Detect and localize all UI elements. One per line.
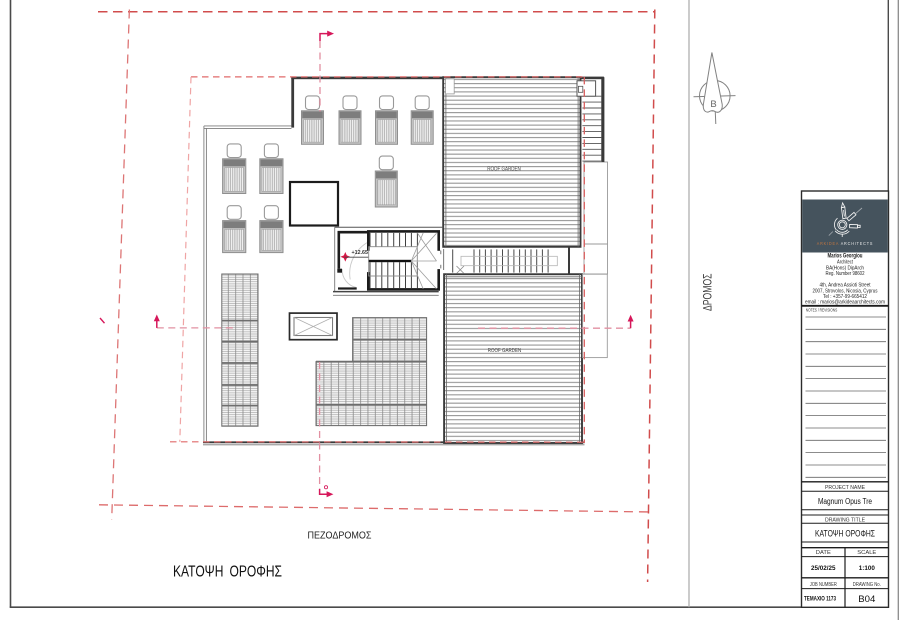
svg-text:B: B: [710, 99, 716, 110]
svg-text:ΔΡΟΜΟΣ: ΔΡΟΜΟΣ: [700, 274, 714, 312]
svg-text:DRAWING No.: DRAWING No.: [853, 582, 881, 588]
svg-text:Reg. Number 98602: Reg. Number 98602: [826, 271, 865, 277]
svg-text:DRAWING TITLE: DRAWING TITLE: [825, 517, 865, 523]
svg-text:email : marios@arkideaarchitec: email : marios@arkideaarchitects.com: [805, 299, 885, 305]
svg-text:DATE: DATE: [816, 550, 831, 556]
svg-text:ARKIDEA ARCHITECTS: ARKIDEA ARCHITECTS: [817, 241, 874, 247]
svg-text:ΚΑΤΟΨΗ ΟΡΟΦΗΣ: ΚΑΤΟΨΗ ΟΡΟΦΗΣ: [173, 563, 282, 580]
svg-text:+12.65: +12.65: [352, 250, 369, 256]
svg-text:ΠΕΖΟΔΡΟΜΟΣ: ΠΕΖΟΔΡΟΜΟΣ: [308, 530, 372, 541]
svg-text:ROOF GARDEN: ROOF GARDEN: [487, 167, 521, 173]
svg-text:NOTES / REVISIONS: NOTES / REVISIONS: [806, 307, 838, 313]
svg-text:B04: B04: [858, 594, 876, 605]
svg-text:Magnum Opus Tre: Magnum Opus Tre: [818, 497, 872, 506]
svg-text:1:100: 1:100: [859, 565, 876, 572]
svg-text:PROJECT NAME: PROJECT NAME: [825, 485, 865, 491]
svg-text:ΤΕΜΑΧΙΟ 1173: ΤΕΜΑΧΙΟ 1173: [804, 596, 836, 603]
svg-text:ΚΑΤΟΨΗ ΟΡΟΦΗΣ: ΚΑΤΟΨΗ ΟΡΟΦΗΣ: [815, 529, 875, 540]
svg-text:SCALE: SCALE: [857, 550, 876, 556]
svg-text:JOB NUMBER: JOB NUMBER: [810, 582, 837, 588]
svg-text:ROOF GARDEN: ROOF GARDEN: [488, 348, 522, 354]
svg-text:25/02/25: 25/02/25: [811, 565, 836, 572]
